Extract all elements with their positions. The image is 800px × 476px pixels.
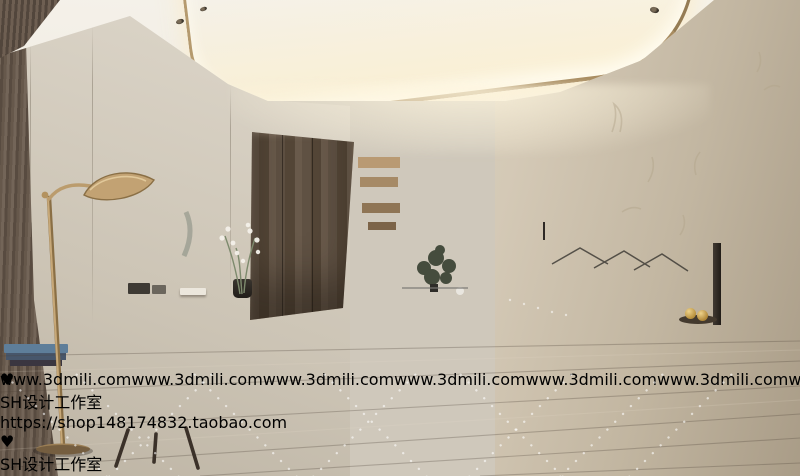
- studio-watermark-tiles: ♥SH设计工作室https://shop148174832.taobao.com…: [0, 370, 287, 476]
- studio-name-watermark: SH设计工作室: [0, 389, 287, 413]
- shop-url-watermark: https://shop148174832.taobao.com: [0, 413, 287, 432]
- studio-name-watermark: SH设计工作室: [0, 451, 287, 475]
- heart-watermark: ♥: [0, 432, 14, 451]
- bedroom-interior-photo: www.3dmili.comwww.3dmili.comwww.3dmili.c…: [0, 0, 800, 476]
- heart-watermark: ♥: [0, 370, 14, 389]
